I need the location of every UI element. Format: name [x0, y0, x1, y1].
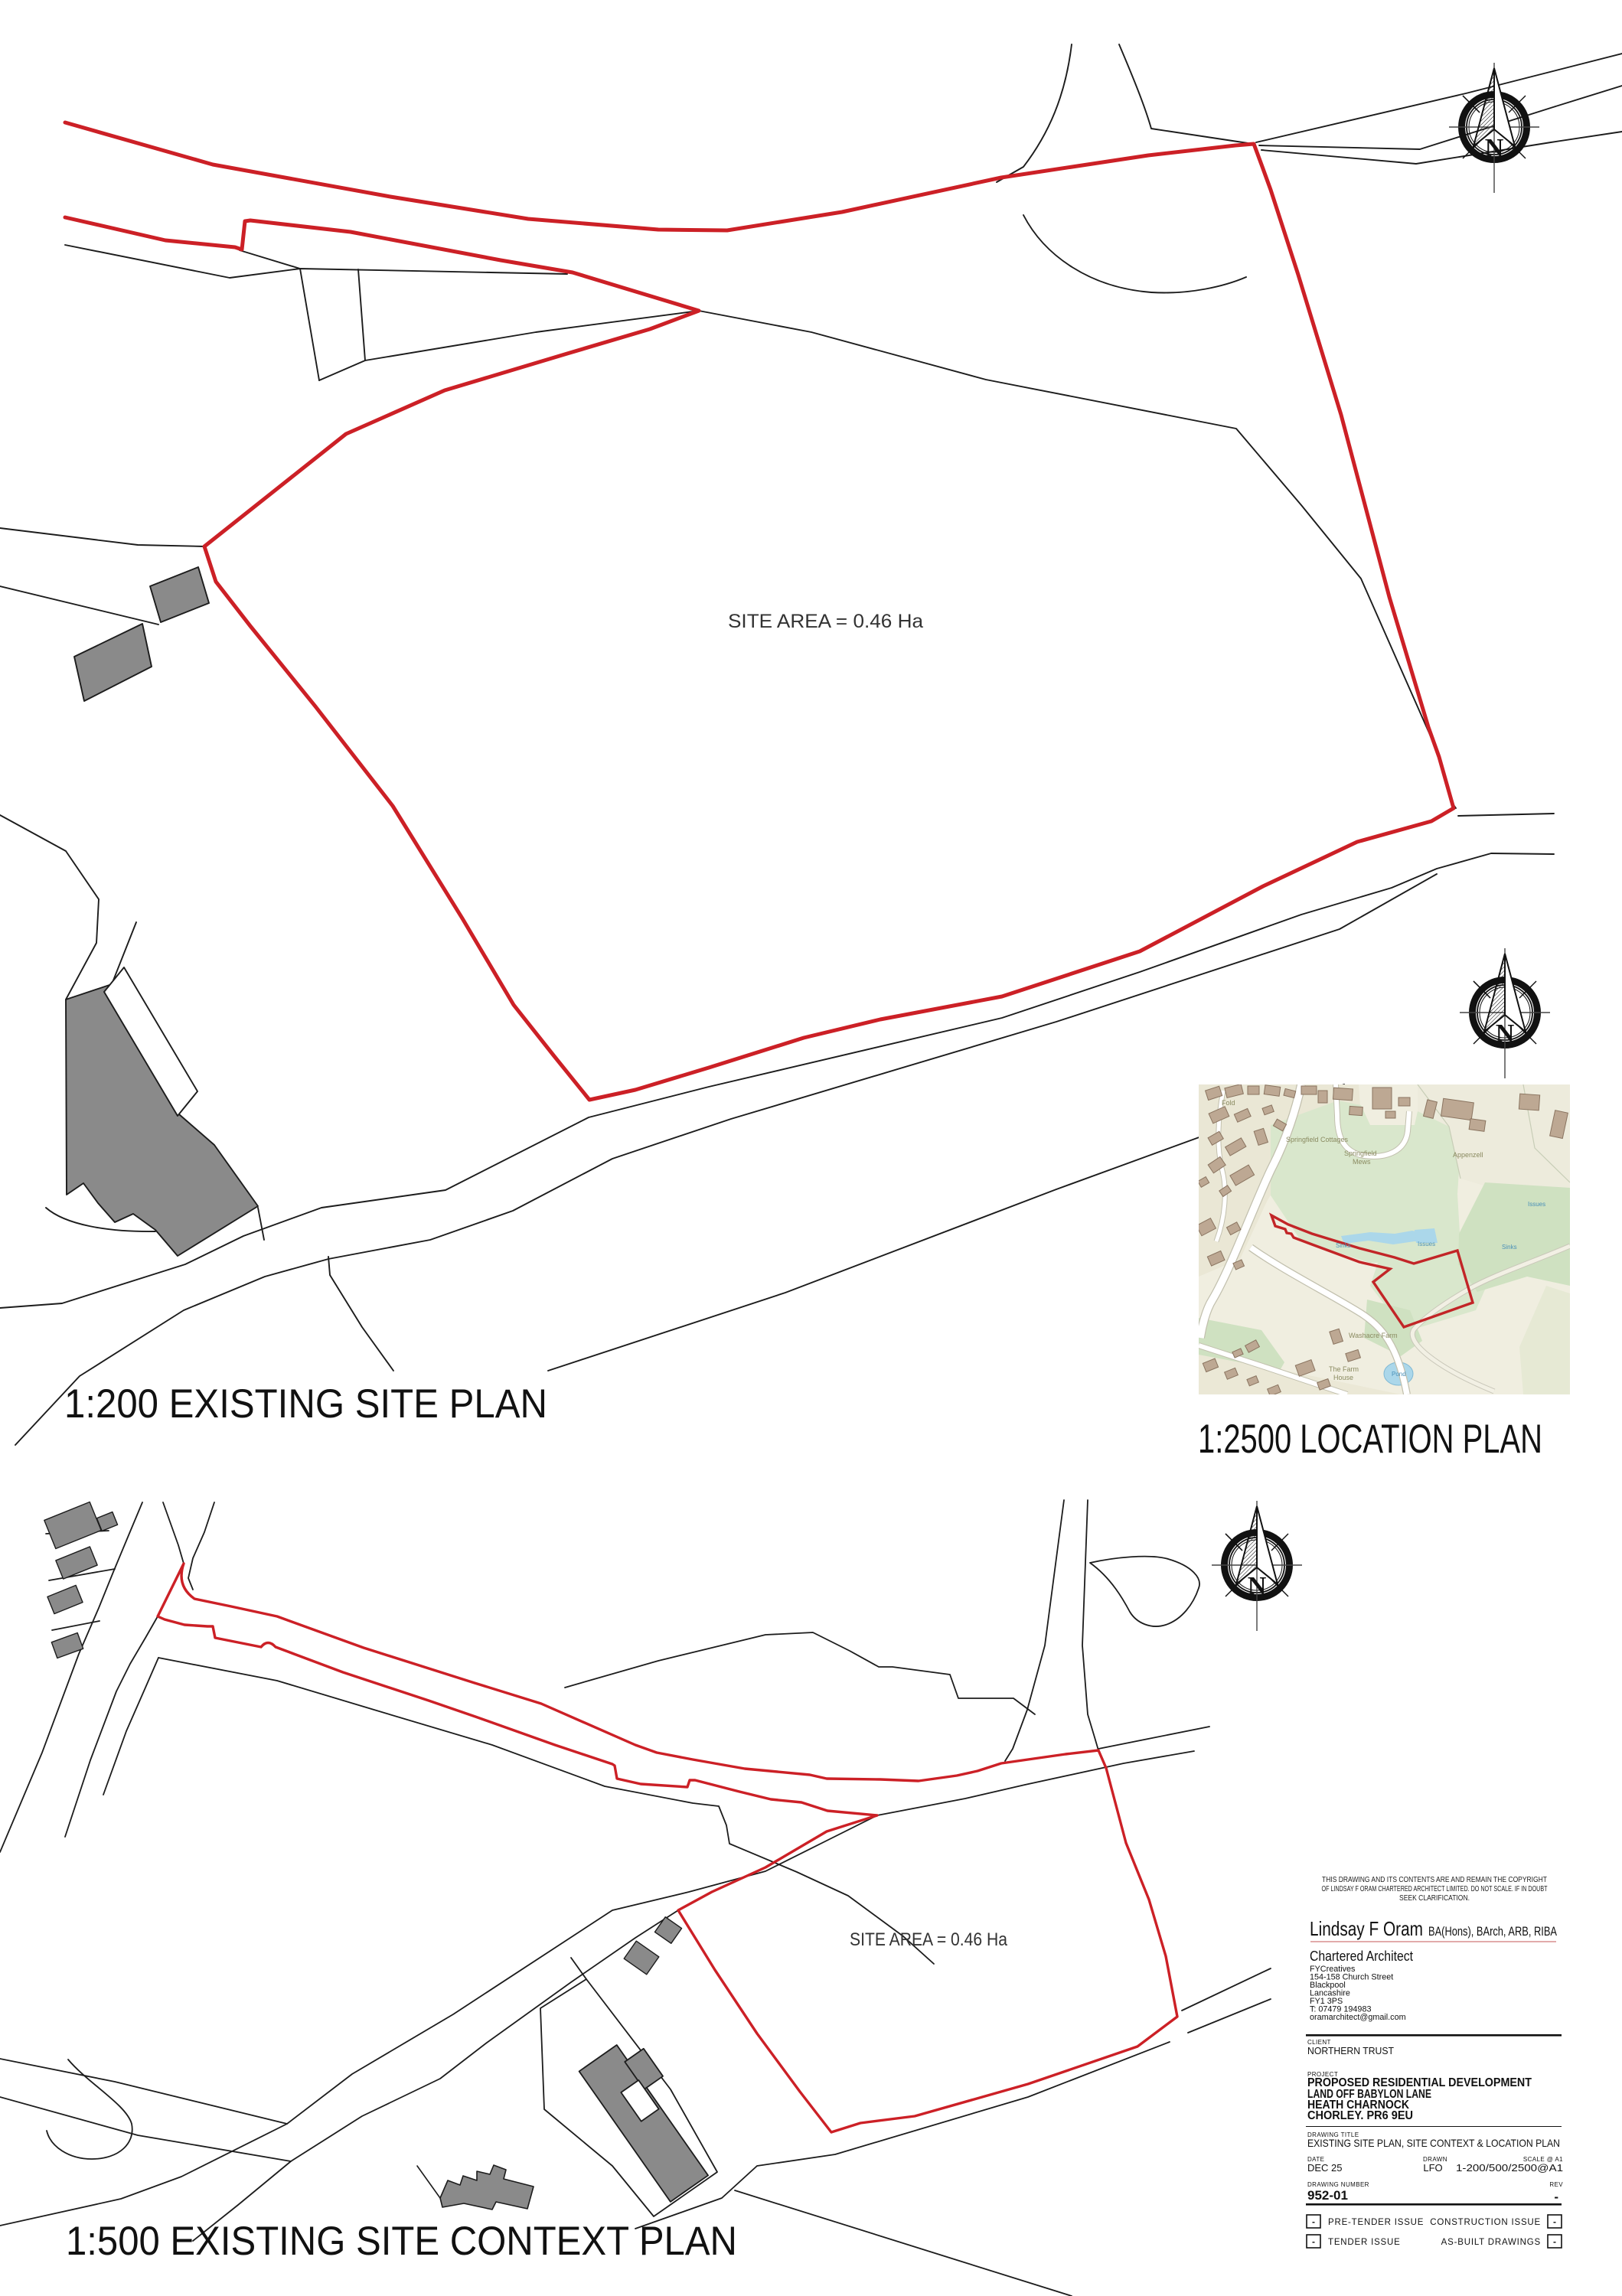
svg-text:1-200/500/2500@A1: 1-200/500/2500@A1 [1456, 2162, 1563, 2174]
svg-text:Springfield: Springfield [1344, 1150, 1377, 1157]
svg-text:-: - [1312, 2216, 1315, 2227]
svg-text:THIS DRAWING AND ITS CONTE: THIS DRAWING AND ITS CONTENTS ARE AND RE… [1322, 1876, 1547, 1884]
svg-text:Issues: Issues [1418, 1241, 1435, 1247]
svg-text:House: House [1333, 1374, 1353, 1381]
svg-text:LFO: LFO [1423, 2162, 1442, 2174]
svg-text:EXISTING SITE PLAN, SITE CONTE: EXISTING SITE PLAN, SITE CONTEXT & LOCAT… [1307, 2138, 1560, 2149]
svg-text:Lindsay F Oram: Lindsay F Oram [1310, 1917, 1423, 1940]
svg-text:-: - [1312, 2236, 1315, 2247]
svg-text:Sinks: Sinks [1336, 1242, 1351, 1249]
svg-text:Issues: Issues [1528, 1201, 1545, 1208]
svg-text:Pond: Pond [1392, 1371, 1406, 1378]
svg-text:REV: REV [1549, 2181, 1563, 2188]
svg-text:CHORLEY. PR6 9EU: CHORLEY. PR6 9EU [1307, 2109, 1413, 2122]
svg-text:1:2500 LOCATION PLAN: 1:2500 LOCATION PLAN [1198, 1417, 1542, 1462]
svg-text:CONSTRUCTION ISSUE: CONSTRUCTION ISSUE [1430, 2218, 1541, 2227]
svg-text:BA(Hons), BArch, ARB, RIBA: BA(Hons), BArch, ARB, RIBA [1428, 1924, 1557, 1939]
svg-text:SEEK CLARIFICATION.: SEEK CLARIFICATION. [1399, 1894, 1470, 1903]
svg-text:Fold: Fold [1222, 1099, 1235, 1107]
svg-text:Mews: Mews [1353, 1158, 1371, 1166]
svg-text:Sinks: Sinks [1502, 1244, 1517, 1251]
svg-text:PRE-TENDER ISSUE: PRE-TENDER ISSUE [1328, 2218, 1424, 2227]
svg-text:952-01: 952-01 [1307, 2188, 1348, 2203]
svg-text:-: - [1553, 2236, 1556, 2247]
svg-text:NORTHERN TRUST: NORTHERN TRUST [1307, 2045, 1394, 2056]
svg-text:1:200 EXISTING SITE PLAN: 1:200 EXISTING SITE PLAN [64, 1381, 547, 1427]
svg-text:oramarchitect@gmail.com: oramarchitect@gmail.com [1310, 2013, 1406, 2022]
svg-text:AS-BUILT DRAWINGS: AS-BUILT DRAWINGS [1441, 2238, 1541, 2247]
svg-text:1:500 EXISTING SITE CONTEXT PL: 1:500 EXISTING SITE CONTEXT PLAN [66, 2219, 737, 2264]
svg-text:OF LINDSAY F ORAM CHARTERED AR: OF LINDSAY F ORAM CHARTERED ARCHITECT LI… [1322, 1885, 1548, 1893]
svg-text:Appenzell: Appenzell [1453, 1151, 1483, 1159]
svg-text:-: - [1553, 2216, 1556, 2227]
svg-text:DEC 25: DEC 25 [1307, 2162, 1343, 2174]
svg-text:Springfield Cottages: Springfield Cottages [1286, 1136, 1349, 1143]
svg-text:The Farm: The Farm [1329, 1365, 1359, 1373]
svg-text:DRAWING NUMBER: DRAWING NUMBER [1307, 2181, 1369, 2188]
svg-text:SITE AREA = 0.46 Ha: SITE AREA = 0.46 Ha [850, 1929, 1008, 1950]
svg-text:TENDER ISSUE: TENDER ISSUE [1328, 2238, 1401, 2247]
svg-text:Chartered Architect: Chartered Architect [1310, 1949, 1413, 1964]
svg-text:SITE AREA = 0.46 Ha: SITE AREA = 0.46 Ha [728, 611, 923, 632]
svg-text:-: - [1554, 2190, 1558, 2204]
svg-text:Washacre Farm: Washacre Farm [1349, 1332, 1398, 1339]
